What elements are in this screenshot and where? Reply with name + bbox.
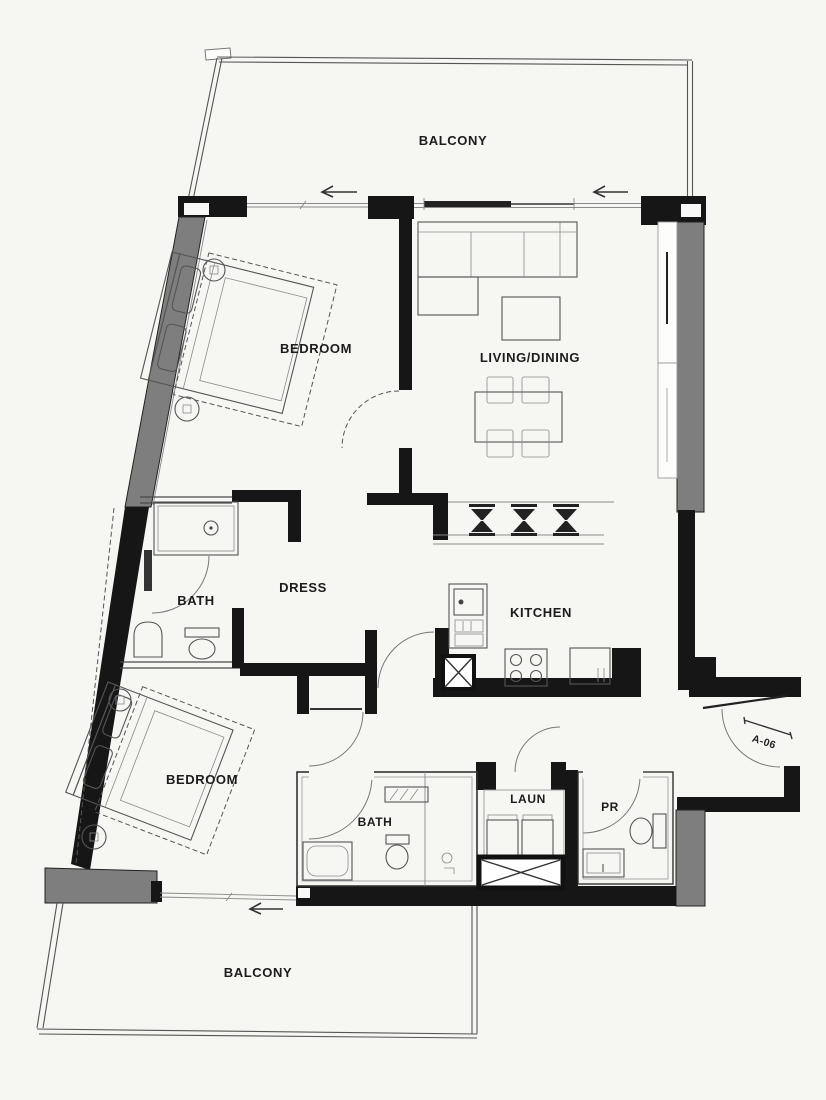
sink-icon <box>583 849 624 877</box>
living-dining: LIVING/DINING <box>418 222 580 457</box>
wall-top-mid-block <box>368 196 414 219</box>
sink-icon <box>134 622 162 657</box>
shear-wall-bottom-left <box>45 868 157 903</box>
shear-wall-right <box>677 222 704 512</box>
dryer-icon <box>522 815 553 857</box>
bedroom-bottom-label: BEDROOM <box>166 772 238 787</box>
balcony-bottom-label: BALCONY <box>224 965 292 980</box>
wall-end-block <box>151 881 162 902</box>
entry-arrow-icon <box>250 903 283 914</box>
wall-entry-top <box>689 677 801 697</box>
powder-room: PR <box>578 768 673 884</box>
balcony-railing-bottom <box>37 1029 477 1038</box>
unit-tag-label: A-06 <box>750 733 777 752</box>
entry-arrow-icon <box>322 186 357 197</box>
top-balcony: BALCONY <box>188 48 693 200</box>
bedroom-top-label: BEDROOM <box>280 341 352 356</box>
living-dining-label: LIVING/DINING <box>480 350 580 365</box>
lamp-icon <box>183 405 191 413</box>
bath2-walls-inner <box>302 777 472 881</box>
wall-notch <box>298 888 310 898</box>
toilet-icon <box>185 628 219 659</box>
wall-laun-east-stub <box>551 762 566 790</box>
entry-arrow-icon <box>594 186 628 197</box>
sofa-icon <box>418 222 577 315</box>
bar-counter <box>433 535 604 544</box>
balcony-railing-left <box>188 58 222 200</box>
shower-icon <box>154 502 238 555</box>
washer-icon <box>487 815 518 857</box>
wall-lower-left-slant <box>71 507 149 870</box>
dining-set-icon <box>475 377 562 457</box>
floor-drain-icon <box>442 853 452 863</box>
wall-bath1-bottom <box>120 662 244 668</box>
coffee-table-icon <box>502 297 560 340</box>
fixture-mark <box>444 868 454 874</box>
pr-walls <box>578 772 673 884</box>
balcony-railing-top <box>217 57 692 65</box>
wall-hall-west <box>365 630 377 714</box>
wall-kitchen-east-block <box>612 648 641 678</box>
laundry: LAUN <box>479 790 564 888</box>
wall-laun-west-stub <box>476 762 496 790</box>
wall-mid-left <box>232 490 301 502</box>
shaft-icon <box>443 656 474 689</box>
nightstand-icon <box>175 397 199 421</box>
towel-shelf-icon <box>385 787 428 802</box>
wall-mid-right <box>367 493 448 505</box>
wall-bedroom1-east <box>399 218 412 390</box>
track-tick <box>300 201 306 209</box>
bath2-door-arc <box>309 776 372 839</box>
balcony-railing-left <box>37 903 63 1028</box>
sliding-door-track <box>247 204 368 208</box>
entry-door-leaf <box>703 696 786 708</box>
shower-inner <box>158 506 234 551</box>
balcony-railing-right <box>472 906 477 1034</box>
balcony-railing-right <box>688 61 693 199</box>
kitchen: KITCHEN <box>433 502 614 689</box>
bar-stool-icon <box>469 504 495 536</box>
wall-bath1-east-stub <box>232 608 244 668</box>
laundry-label: LAUN <box>510 792 546 806</box>
shaft-icon <box>479 857 563 888</box>
drain-dot <box>209 526 212 529</box>
kitchen-sink-icon <box>449 584 487 648</box>
wall-bedroom1-east-lower <box>399 448 412 493</box>
bath-bottom-label: BATH <box>358 815 393 829</box>
wall-right-corridor <box>678 510 695 690</box>
bar-stool-icon <box>511 504 537 536</box>
wall-pr-west <box>565 770 578 888</box>
powder-room-label: PR <box>601 800 619 814</box>
floor-plan-canvas: BALCONY <box>0 0 826 1100</box>
wall-bedroom2-jamb <box>297 676 309 714</box>
sliding-door-leaf <box>424 201 511 207</box>
bath2-walls <box>297 772 477 886</box>
inner-walls <box>120 218 641 888</box>
shear-wall-bottom-right <box>676 810 705 906</box>
balcony-top-label: BALCONY <box>419 133 487 148</box>
pr-door-opening <box>583 768 643 779</box>
toilet-icon <box>386 835 409 869</box>
kitchen-door-arc <box>378 632 434 688</box>
wall-notch <box>681 204 701 217</box>
pr-walls-inner <box>583 777 668 879</box>
entry-tag-line <box>744 717 792 739</box>
wall-entry-notch <box>695 657 716 677</box>
bar-stool-icon <box>553 504 579 536</box>
shear-wall-upper-left <box>125 217 205 507</box>
bathtub-icon <box>303 842 352 880</box>
wall-notch <box>184 203 209 215</box>
wall-bath1-stub <box>288 502 301 542</box>
dress-label: DRESS <box>279 580 327 595</box>
bath2-door-opening <box>309 768 374 780</box>
toilet-icon <box>630 814 666 848</box>
bottom-balcony: BALCONY <box>37 903 477 1038</box>
bath1-door-leaf <box>144 550 152 591</box>
wall-corridor-south <box>240 663 365 676</box>
kitchen-label: KITCHEN <box>510 605 572 620</box>
bath-top-label: BATH <box>177 593 215 608</box>
bath-bottom: BATH <box>297 768 477 886</box>
bedroom2-door-arc <box>309 712 363 766</box>
balcony-corner-cap <box>205 48 231 60</box>
lamp-icon <box>210 266 218 274</box>
bedroom1-door-arc <box>342 391 399 448</box>
